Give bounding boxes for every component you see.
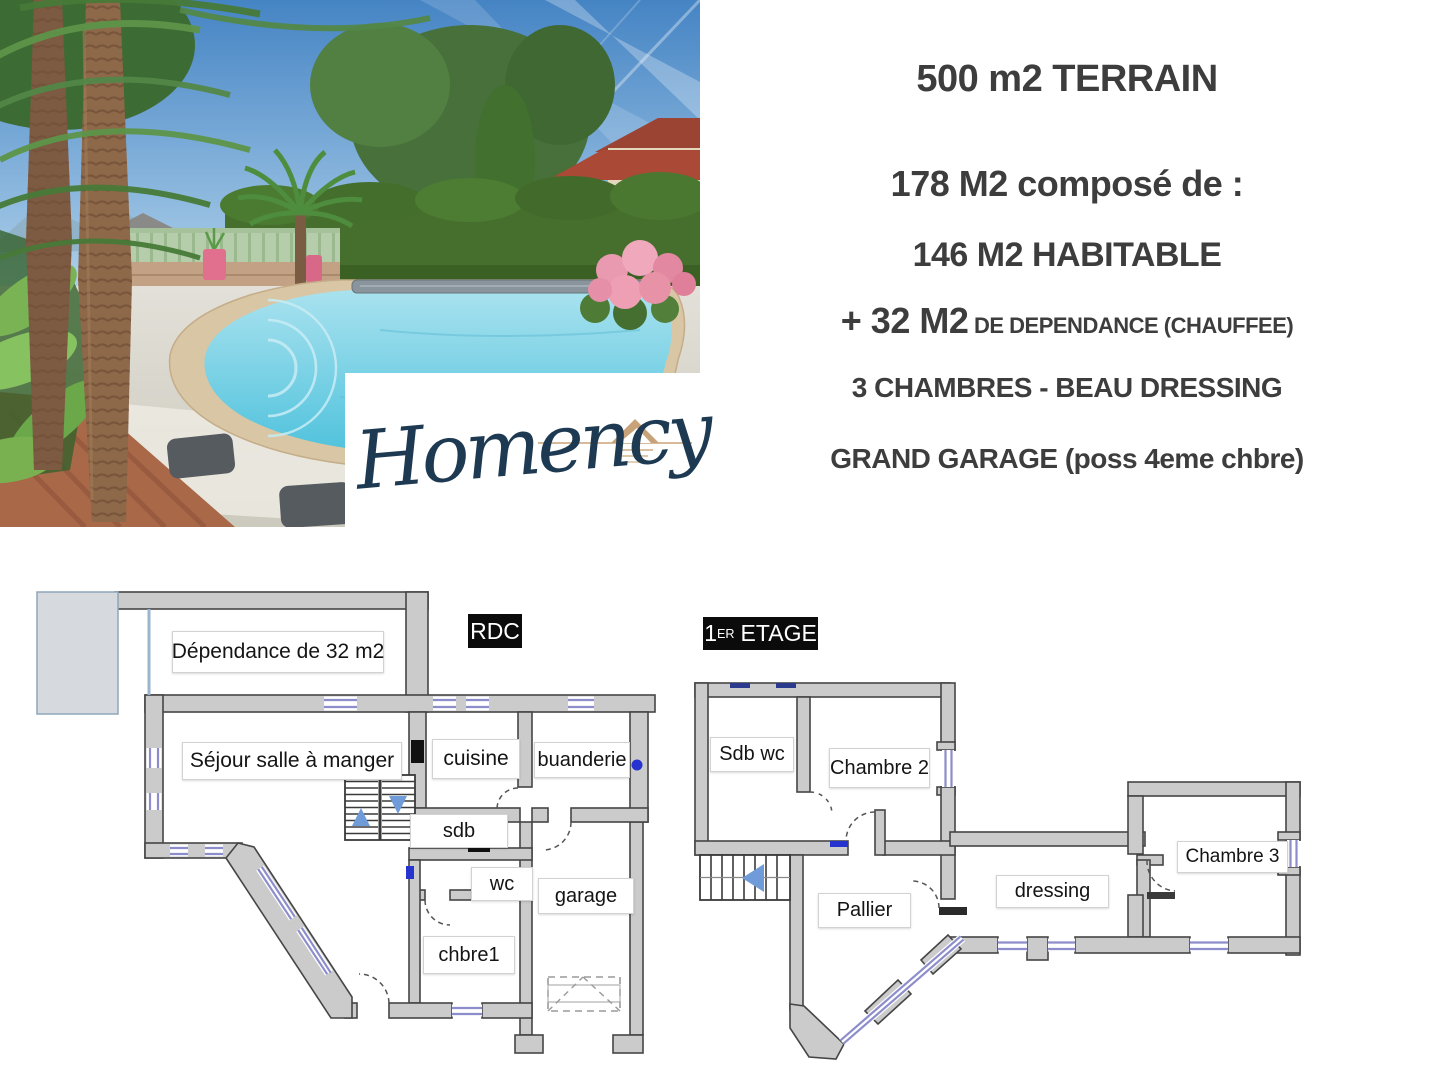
blue-marker	[830, 841, 848, 847]
rdc-tag: RDC	[468, 614, 522, 648]
poster: { "info": { "terrain": "500 m2 TERRAIN",…	[0, 0, 1440, 1080]
etage-tag-number: 1	[704, 620, 717, 647]
info-garage: GRAND GARAGE (poss 4eme chbre)	[762, 443, 1372, 475]
annex-block	[37, 592, 118, 714]
room-label-wc: wc	[471, 867, 533, 901]
rdc-staircase	[345, 775, 415, 840]
blue-marker	[776, 683, 796, 688]
etage-staircase	[700, 855, 790, 900]
room-label-sdbwc: Sdb wc	[710, 737, 794, 772]
door-leaf	[939, 907, 967, 915]
info-chambres: 3 CHAMBRES - BEAU DRESSING	[762, 372, 1372, 404]
agency-logo: Homency	[345, 373, 700, 527]
door-leaf	[411, 740, 424, 763]
room-label-buanderie: buanderie	[534, 742, 630, 778]
blue-marker	[406, 866, 414, 879]
room-label-sejour: Séjour salle à manger	[182, 742, 402, 780]
blue-marker	[632, 760, 643, 771]
room-label-chbre1: chbre1	[423, 936, 515, 974]
info-dependance-detail: DE DEPENDANCE (CHAUFFEE)	[968, 313, 1293, 338]
info-terrain: 500 m2 TERRAIN	[762, 58, 1372, 101]
etage-floorplan-drawing	[690, 608, 1310, 1063]
info-dependance: + 32 M2 DE DEPENDANCE (CHAUFFEE)	[762, 300, 1372, 342]
room-label-cuisine: cuisine	[432, 739, 520, 779]
room-label-chambre2: Chambre 2	[829, 748, 930, 788]
room-label-chambre3: Chambre 3	[1177, 841, 1288, 873]
etage-door-arcs	[810, 792, 1175, 908]
room-label-dependance: Dépendance de 32 m2	[172, 631, 384, 673]
room-label-sdb: sdb	[410, 814, 508, 848]
garage-door	[548, 977, 620, 1011]
room-label-garage: garage	[538, 878, 634, 914]
room-label-pallier: Pallier	[818, 893, 911, 928]
floorplan-etage: 1ERETAGE Sdb wc Chambre 2 Pallier dressi…	[690, 608, 1310, 1063]
blue-marker	[730, 683, 750, 688]
etage-tag: 1ERETAGE	[703, 617, 818, 650]
info-habitable: 146 M2 HABITABLE	[762, 236, 1372, 275]
info-compose: 178 M2 composé de :	[762, 163, 1372, 205]
etage-tag-rest: ETAGE	[741, 620, 817, 647]
floorplan-rdc: RDC Dépendance de 32 m2 Séjour salle à m…	[30, 582, 670, 1062]
info-dependance-size: + 32 M2	[841, 300, 969, 341]
door-leaf	[1147, 892, 1175, 899]
room-label-dressing: dressing	[996, 875, 1109, 908]
